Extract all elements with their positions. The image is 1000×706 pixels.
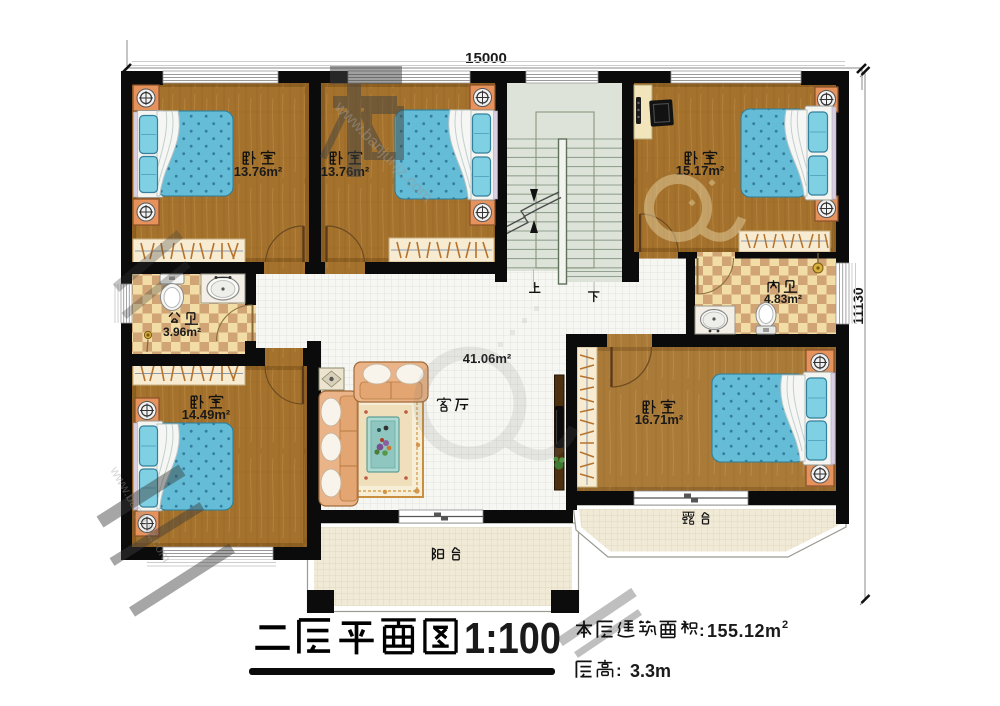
svg-text:1:100: 1:100 — [464, 614, 561, 663]
svg-text::: : — [616, 661, 622, 680]
svg-text:14.49m²: 14.49m² — [182, 407, 231, 422]
svg-text:2: 2 — [782, 619, 788, 631]
svg-text:16.71m²: 16.71m² — [635, 412, 684, 427]
svg-text:13.76m²: 13.76m² — [321, 164, 370, 179]
svg-text:3.3m: 3.3m — [630, 661, 671, 681]
svg-text::: : — [699, 621, 705, 640]
svg-text:15000: 15000 — [465, 50, 507, 67]
svg-text:155.12m: 155.12m — [707, 621, 781, 641]
svg-text:3.96m²: 3.96m² — [163, 325, 201, 339]
svg-text:13.76m²: 13.76m² — [234, 164, 283, 179]
svg-text:4.83m²: 4.83m² — [764, 292, 802, 306]
